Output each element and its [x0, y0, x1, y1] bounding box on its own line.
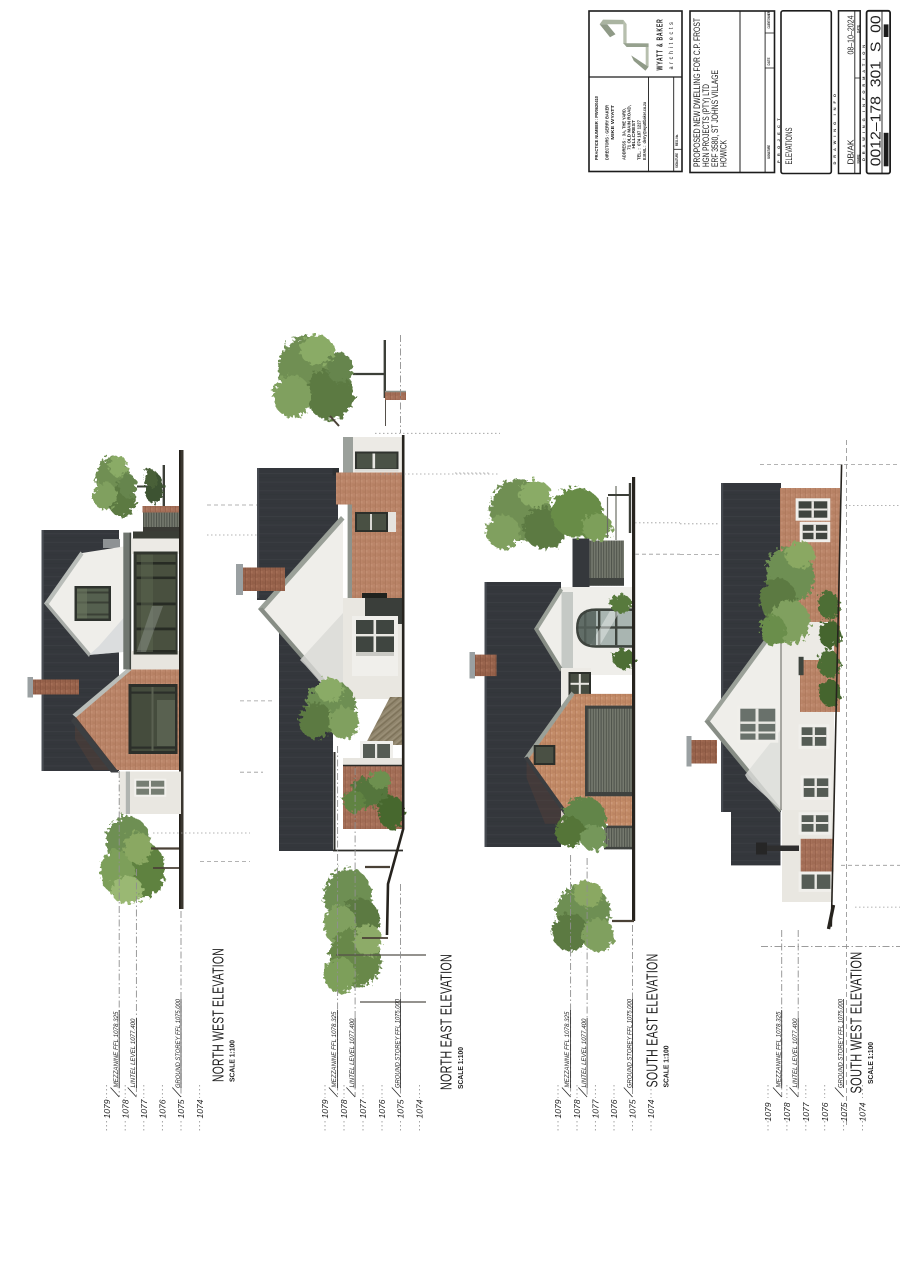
svg-text:PRACTICE NUMBER : PW0620410: PRACTICE NUMBER : PW0620410 — [594, 95, 599, 160]
svg-text:SCALE 1:100: SCALE 1:100 — [662, 1046, 671, 1088]
svg-text:1076: 1076 — [158, 1099, 168, 1118]
svg-text:HOWICK: HOWICK — [719, 140, 729, 167]
svg-text:1075: 1075 — [396, 1099, 406, 1118]
svg-text:SOUTH WEST ELEVATION: SOUTH WEST ELEVATION — [849, 952, 866, 1094]
svg-text:SIGNATURE: SIGNATURE — [767, 145, 771, 159]
svg-text:1079: 1079 — [553, 1099, 563, 1118]
svg-text:1076: 1076 — [377, 1099, 387, 1118]
svg-text:SOUTH EAST ELEVATION: SOUTH EAST ELEVATION — [645, 954, 662, 1088]
svg-text:D R A W I N G I N F O: D R A W I N G I N F O — [832, 93, 837, 165]
svg-text:SIGNATURE: SIGNATURE — [675, 152, 679, 168]
svg-text:1077: 1077 — [139, 1098, 149, 1118]
svg-text:1074: 1074 — [646, 1099, 656, 1118]
svg-text:0012–178 301 S 00: 0012–178 301 S 00 — [868, 15, 885, 166]
svg-text:DIRECTORS : GERRY BAKER: DIRECTORS : GERRY BAKER — [604, 104, 609, 160]
svg-text:1074: 1074 — [415, 1099, 425, 1118]
svg-text:1079: 1079 — [763, 1102, 773, 1121]
svg-text:1075: 1075 — [628, 1099, 638, 1118]
svg-text:1076: 1076 — [609, 1099, 619, 1118]
svg-text:08–10–2024: 08–10–2024 — [847, 15, 856, 54]
svg-text:TEL. : 074 187 1227: TEL. : 074 187 1227 — [637, 119, 642, 160]
svg-text:CLIENT/OWNER: CLIENT/OWNER — [767, 11, 771, 28]
svg-text:ELEVATIONS: ELEVATIONS — [784, 128, 794, 165]
svg-text:architects: architects — [669, 20, 675, 70]
svg-text:1075: 1075 — [176, 1099, 186, 1118]
svg-text:1079: 1079 — [102, 1099, 112, 1118]
svg-text:MEZZANINE FFL 1078.325: MEZZANINE FFL 1078.325 — [564, 1011, 571, 1087]
svg-text:1079: 1079 — [320, 1099, 330, 1118]
svg-text:HILLCREST: HILLCREST — [631, 120, 636, 160]
svg-text:NORTH WEST ELEVATION: NORTH WEST ELEVATION — [211, 948, 228, 1082]
svg-text:NORTH EAST ELEVATION: NORTH EAST ELEVATION — [439, 954, 456, 1090]
svg-text:1074: 1074 — [858, 1102, 868, 1121]
svg-text:SCALE 1:100: SCALE 1:100 — [866, 1042, 875, 1084]
svg-text:1078: 1078 — [572, 1099, 582, 1118]
svg-text:MEZZANINE FFL 1078.325: MEZZANINE FFL 1078.325 — [331, 1011, 338, 1087]
svg-text:DRAWING NUMBER: DRAWING NUMBER — [885, 133, 889, 166]
svg-text:1078: 1078 — [120, 1099, 130, 1118]
svg-text:DB/AK: DB/AK — [847, 139, 856, 165]
svg-text:DATE: DATE — [856, 25, 860, 33]
svg-text:1078: 1078 — [782, 1102, 792, 1121]
svg-text:E.MAIL : derry@wyattbaker.co.: E.MAIL : derry@wyattbaker.co.za — [642, 101, 647, 160]
svg-text:DATE: DATE — [767, 58, 771, 66]
svg-text:MEZZANINE FFL 1078.325: MEZZANINE FFL 1078.325 — [775, 1011, 782, 1087]
svg-text:MEZZANINE FFL 1078.325: MEZZANINE FFL 1078.325 — [113, 1011, 120, 1087]
svg-text:SCALE 1:100: SCALE 1:100 — [228, 1040, 237, 1082]
svg-text:1078: 1078 — [339, 1099, 349, 1118]
svg-text:NAME: NAME — [856, 155, 860, 164]
svg-text:MIKE WYATT: MIKE WYATT — [610, 105, 615, 160]
svg-text:1077: 1077 — [591, 1098, 601, 1118]
svg-text:1074: 1074 — [195, 1099, 205, 1118]
svg-text:1076: 1076 — [820, 1102, 830, 1121]
svg-text:SCALE 1:100: SCALE 1:100 — [456, 1047, 465, 1089]
svg-text:D R A W I N G I N F O R M A T: D R A W I N G I N F O R M A T I O N — [861, 43, 866, 161]
svg-text:1075: 1075 — [839, 1102, 849, 1121]
svg-text:1077: 1077 — [358, 1098, 368, 1118]
svg-text:WYATT & BAKER: WYATT & BAKER — [655, 19, 665, 71]
svg-text:REVISION: REVISION — [885, 25, 889, 36]
svg-text:1077: 1077 — [801, 1101, 811, 1121]
svg-text:REG. No.: REG. No. — [675, 134, 679, 146]
